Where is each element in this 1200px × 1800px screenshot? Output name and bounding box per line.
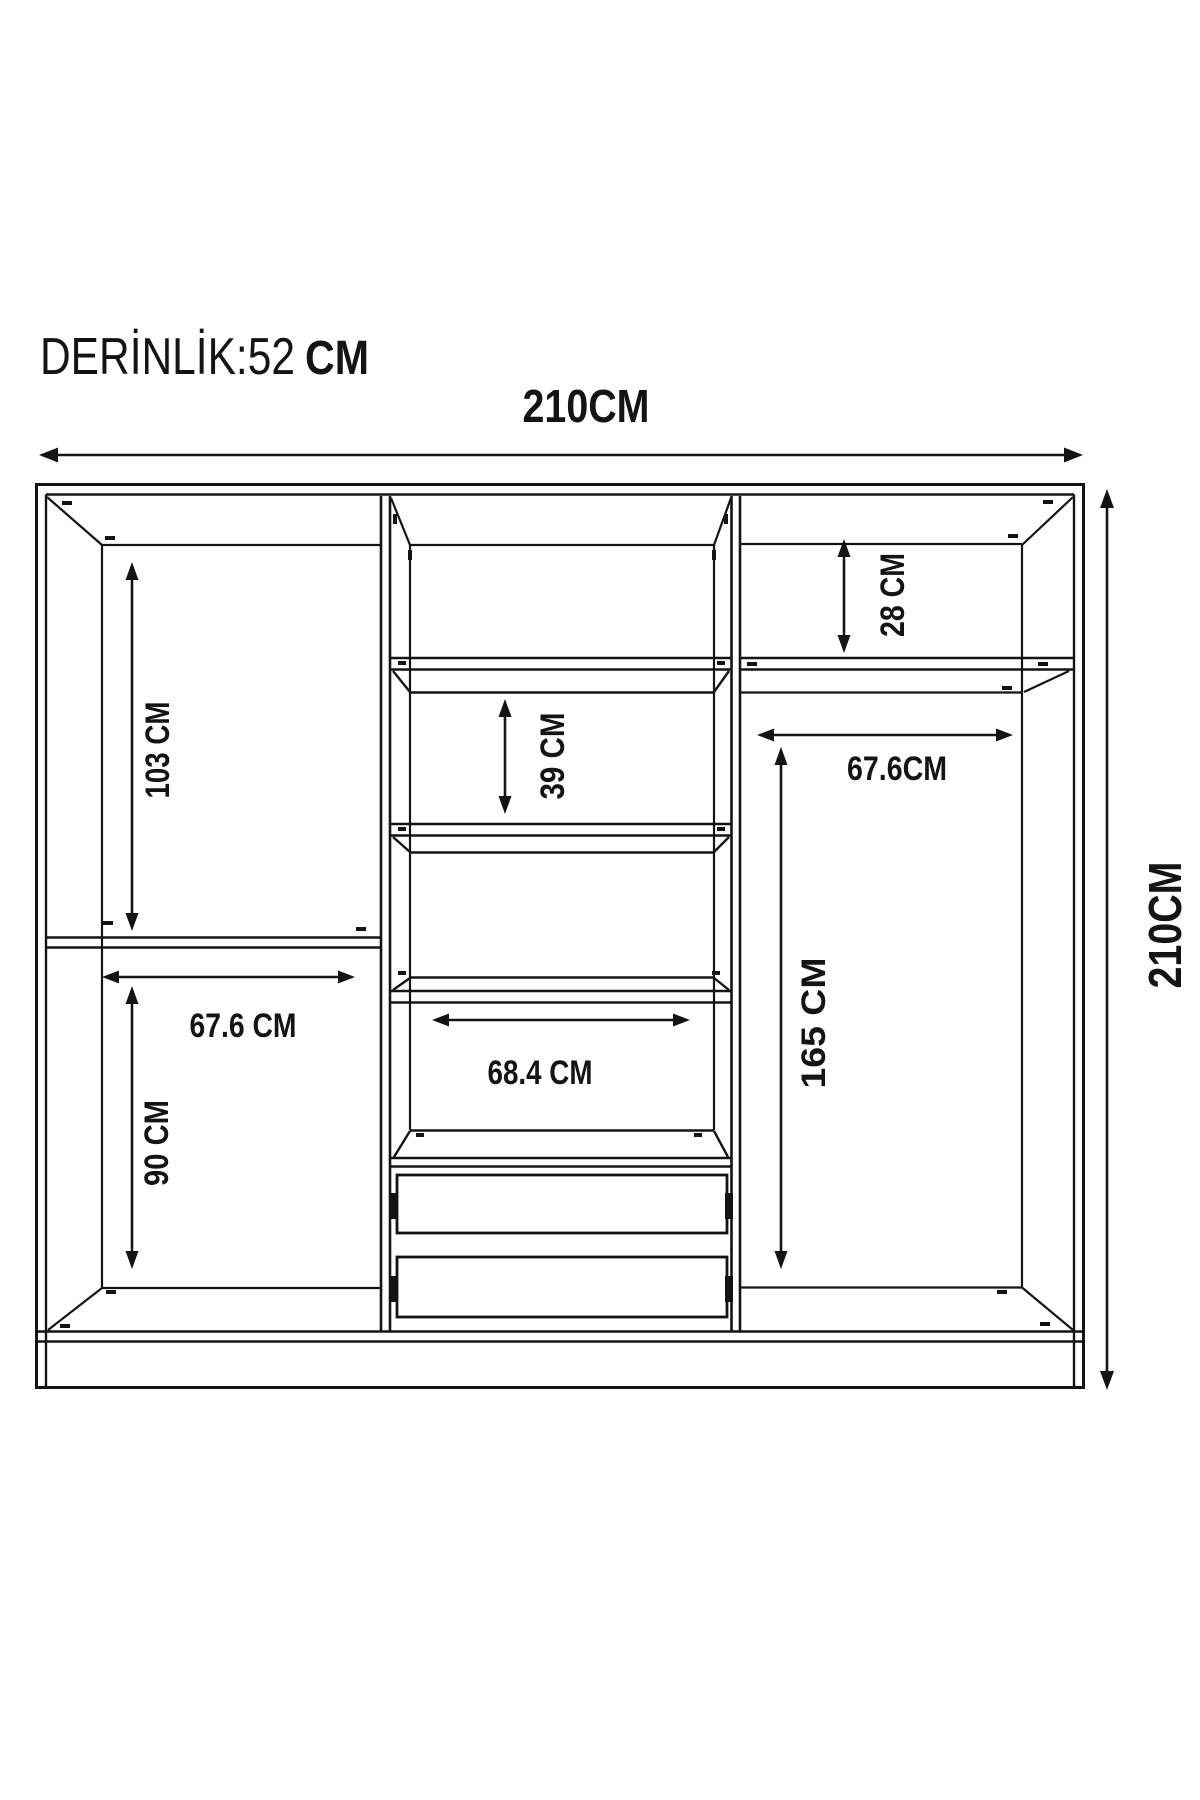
middle-width-label: 68.4 CM <box>488 1054 593 1092</box>
middle-compartment-height-label: 39 CM <box>534 713 572 800</box>
arrowhead-down-icon <box>1100 1371 1114 1390</box>
dimension-middle-compartment-height: 39 CM <box>499 699 573 814</box>
left-width-label: 67.6 CM <box>190 1007 297 1045</box>
perspective-lines <box>47 497 1073 1330</box>
arrowhead-left-icon <box>39 448 58 463</box>
cabinet-frame <box>37 485 1084 1388</box>
diagram-svg: DERİNLİK:52 CM <box>0 0 1200 1800</box>
arrowhead-up-icon <box>1100 489 1114 508</box>
dimension-right-width: 67.6CM <box>757 729 1013 789</box>
divider-left <box>381 496 390 1331</box>
title: DERİNLİK:52 CM <box>40 328 369 386</box>
dimension-left-width: 67.6 CM <box>102 971 355 1046</box>
drawer-top-left-handle[interactable] <box>390 1193 398 1219</box>
drawer-top-right-handle[interactable] <box>725 1193 733 1219</box>
depth-title-text: DERİNLİK:52 <box>40 328 295 386</box>
left-upper-height-label: 103 CM <box>139 702 177 799</box>
dimension-left-upper-height: 103 CM <box>126 562 178 931</box>
dimension-middle-width: 68.4 CM <box>432 1014 690 1093</box>
right-hanging-height-label: 165 CM <box>795 958 833 1089</box>
drawer-top[interactable] <box>397 1175 727 1233</box>
left-lower-height-label: 90 CM <box>138 1100 176 1186</box>
right-top-height-label: 28 CM <box>874 553 912 637</box>
arrowhead-right-icon <box>1064 448 1083 463</box>
total-height-label: 210CM <box>1139 862 1191 989</box>
drawer-bottom-left-handle[interactable] <box>390 1276 398 1302</box>
right-width-label: 67.6CM <box>847 750 947 788</box>
dimension-total-height: 210CM <box>1100 489 1191 1390</box>
total-width-label: 210CM <box>523 380 650 432</box>
drawers <box>390 1175 733 1317</box>
dimension-total-width: 210CM <box>39 380 1083 463</box>
dimension-left-lower-height: 90 CM <box>126 986 177 1269</box>
wardrobe-dimension-diagram: DERİNLİK:52 CM <box>0 0 1200 1800</box>
depth-title-unit: CM <box>305 332 369 385</box>
left-shelf <box>46 938 381 948</box>
drawer-bottom[interactable] <box>397 1257 727 1317</box>
dimension-right-hanging-height: 165 CM <box>775 747 834 1269</box>
dimension-right-top-height: 28 CM <box>838 539 913 653</box>
drawer-bottom-right-handle[interactable] <box>725 1276 733 1302</box>
